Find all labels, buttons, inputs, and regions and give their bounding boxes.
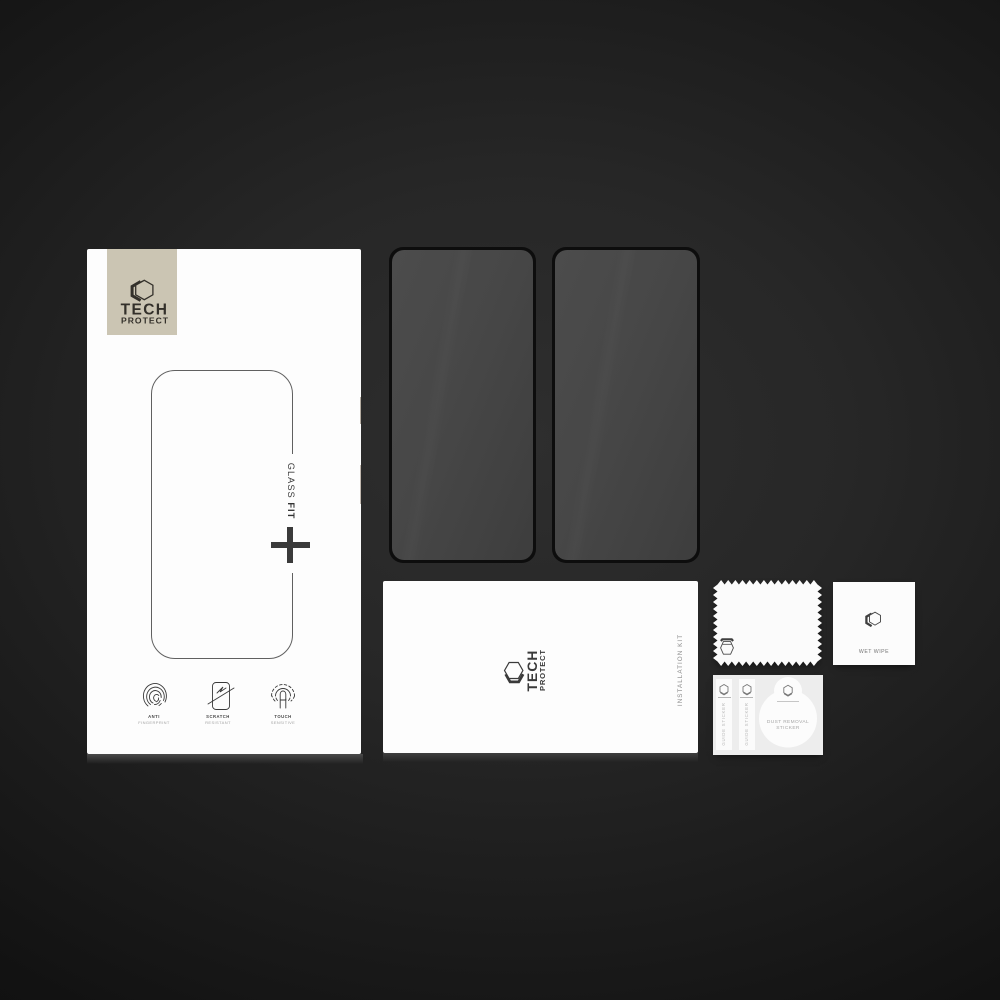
svg-text:PROTECT: PROTECT bbox=[121, 316, 169, 326]
svg-text:PROTECT: PROTECT bbox=[538, 649, 547, 691]
